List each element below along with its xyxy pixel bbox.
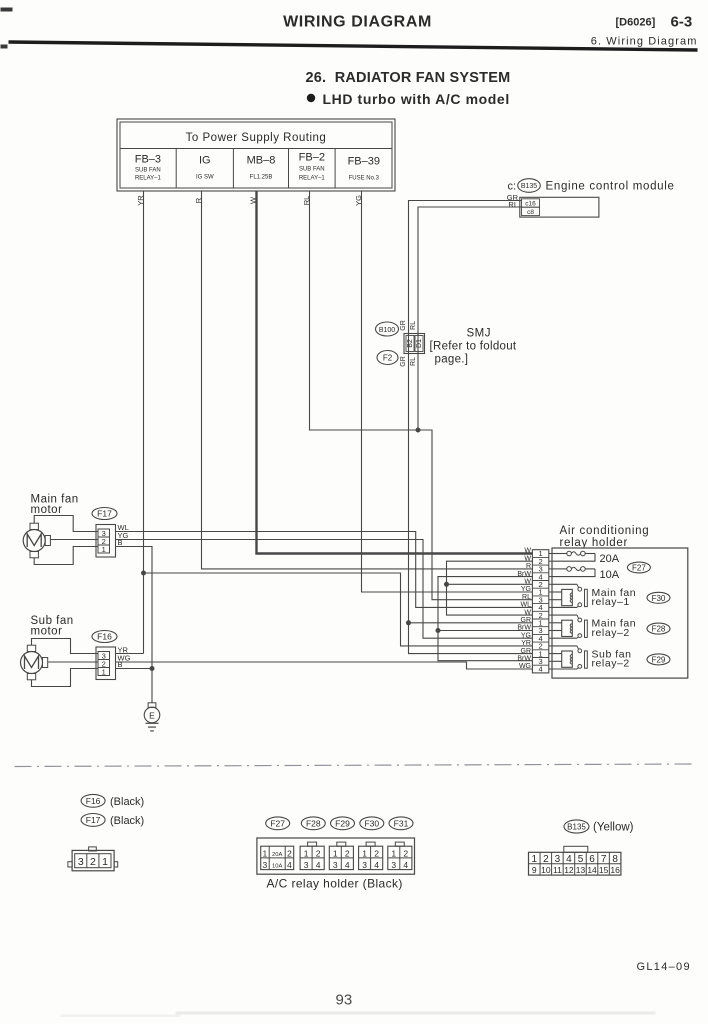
svg-text:F29: F29 — [335, 818, 350, 828]
svg-text:GL14–09: GL14–09 — [637, 961, 691, 973]
svg-text:GR: GR — [521, 617, 532, 624]
svg-text:3: 3 — [263, 860, 268, 870]
svg-text:2: 2 — [90, 856, 96, 868]
svg-text:2: 2 — [316, 849, 321, 859]
svg-text:3: 3 — [362, 860, 367, 870]
svg-text:F29: F29 — [652, 655, 666, 664]
svg-text:3: 3 — [391, 860, 396, 870]
svg-text:Air conditioning: Air conditioning — [560, 525, 650, 537]
svg-text:YR: YR — [521, 640, 531, 647]
svg-text:6-3: 6-3 — [671, 14, 693, 31]
svg-text:B135: B135 — [567, 823, 586, 832]
svg-text:3: 3 — [78, 856, 84, 868]
svg-text:11: 11 — [553, 865, 562, 875]
svg-text:(Black): (Black) — [110, 796, 144, 808]
svg-text:1: 1 — [102, 667, 106, 676]
svg-text:4: 4 — [539, 665, 543, 674]
svg-text:F2: F2 — [383, 354, 393, 363]
svg-text:F28: F28 — [306, 818, 321, 828]
svg-text:YG: YG — [521, 632, 531, 639]
svg-text:B: B — [118, 660, 123, 669]
svg-text:W: W — [524, 609, 531, 616]
svg-text:B100: B100 — [379, 327, 395, 334]
svg-text:F30: F30 — [652, 594, 666, 603]
svg-text:F17: F17 — [86, 815, 101, 825]
svg-text:1: 1 — [304, 849, 309, 859]
svg-text:relay–2: relay–2 — [592, 658, 630, 670]
svg-text:FL1.25B: FL1.25B — [250, 175, 273, 181]
svg-text:FB–3: FB–3 — [135, 154, 161, 166]
svg-text:6: 6 — [589, 854, 595, 865]
svg-text:F27: F27 — [632, 564, 646, 573]
svg-text:[Refer to foldout: [Refer to foldout — [430, 341, 517, 353]
svg-text:4: 4 — [345, 860, 350, 870]
svg-text:To Power Supply Routing: To Power Supply Routing — [186, 132, 327, 144]
svg-text:motor: motor — [31, 626, 63, 638]
svg-text:FUSE No.3: FUSE No.3 — [349, 176, 380, 182]
svg-text:F16: F16 — [97, 632, 112, 642]
svg-text:RL: RL — [410, 321, 417, 330]
svg-text:c16: c16 — [525, 201, 536, 208]
svg-text:3: 3 — [333, 860, 338, 870]
svg-text:1: 1 — [391, 849, 396, 859]
svg-text:RL: RL — [410, 357, 417, 366]
svg-text:BrW: BrW — [517, 625, 531, 632]
svg-text:8: 8 — [612, 854, 618, 865]
svg-text:93: 93 — [336, 992, 353, 1009]
svg-text:26. RADIATOR FAN SYSTEM: 26. RADIATOR FAN SYSTEM — [306, 70, 511, 86]
svg-text:SMJ: SMJ — [467, 328, 492, 340]
svg-text:Engine control module: Engine control module — [546, 181, 675, 193]
svg-text:W: W — [524, 555, 531, 562]
svg-text:12: 12 — [564, 865, 574, 875]
svg-text:F28: F28 — [652, 625, 666, 634]
svg-text:B135: B135 — [521, 183, 537, 190]
svg-text:E: E — [149, 711, 155, 721]
svg-text:WIRING DIAGRAM: WIRING DIAGRAM — [283, 14, 432, 31]
svg-text:YG: YG — [521, 586, 531, 593]
svg-text:c:: c: — [508, 181, 517, 193]
svg-text:2: 2 — [543, 854, 549, 865]
svg-text:2: 2 — [345, 849, 350, 859]
svg-text:RELAY–1: RELAY–1 — [299, 176, 326, 182]
svg-text:3: 3 — [304, 860, 309, 870]
svg-text:15: 15 — [599, 865, 609, 875]
svg-text:LHD turbo with A/C model: LHD turbo with A/C model — [323, 91, 510, 107]
svg-text:F16: F16 — [86, 796, 101, 806]
svg-text:6. Wiring Diagram: 6. Wiring Diagram — [591, 36, 698, 48]
svg-text:(Black): (Black) — [110, 815, 144, 827]
svg-text:GR: GR — [521, 648, 532, 655]
svg-text:F31: F31 — [394, 818, 409, 828]
svg-text:F17: F17 — [97, 509, 112, 519]
svg-text:relay–2: relay–2 — [592, 627, 630, 639]
svg-text:1: 1 — [102, 856, 108, 868]
svg-text:F30: F30 — [364, 818, 379, 828]
svg-text:2: 2 — [403, 849, 408, 859]
svg-text:BrW: BrW — [517, 571, 531, 578]
svg-text:(Yellow): (Yellow) — [593, 822, 634, 834]
svg-text:3: 3 — [555, 854, 561, 865]
svg-text:1: 1 — [102, 545, 106, 554]
svg-text:IG SW: IG SW — [196, 175, 214, 181]
svg-text:SUB FAN: SUB FAN — [299, 167, 325, 173]
svg-text:c8: c8 — [527, 209, 534, 216]
svg-text:4: 4 — [403, 860, 408, 870]
svg-text:2: 2 — [287, 849, 292, 859]
svg-text:R: R — [526, 563, 531, 570]
svg-text:FB–39: FB–39 — [348, 156, 380, 168]
svg-text:4: 4 — [374, 860, 379, 870]
svg-text:10A: 10A — [600, 569, 620, 581]
svg-text:[D6026]: [D6026] — [616, 17, 656, 29]
svg-text:SUB FAN: SUB FAN — [135, 168, 161, 174]
svg-text:5: 5 — [578, 854, 584, 865]
svg-text:WG: WG — [519, 663, 531, 670]
svg-text:GR: GR — [400, 356, 407, 367]
svg-text:1: 1 — [362, 849, 367, 859]
svg-text:MB–8: MB–8 — [247, 155, 276, 167]
svg-text:4: 4 — [566, 854, 572, 865]
svg-text:BrW: BrW — [517, 656, 531, 663]
svg-text:WL: WL — [521, 602, 532, 609]
svg-text:page.]: page.] — [435, 354, 469, 366]
svg-text:FB–2: FB–2 — [299, 152, 325, 164]
svg-text:1: 1 — [263, 849, 268, 859]
svg-text:motor: motor — [31, 504, 63, 516]
svg-text:GR: GR — [400, 320, 407, 331]
svg-text:20A: 20A — [272, 852, 282, 858]
svg-text:relay holder: relay holder — [560, 537, 629, 549]
svg-text:4: 4 — [287, 860, 292, 870]
svg-text:A/C relay holder (Black): A/C relay holder (Black) — [267, 877, 403, 891]
svg-text:1: 1 — [333, 849, 338, 859]
svg-text:14: 14 — [587, 865, 597, 875]
svg-text:relay–1: relay–1 — [592, 596, 630, 608]
svg-text:RL: RL — [522, 594, 531, 601]
svg-text:20A: 20A — [600, 553, 620, 565]
svg-text:2: 2 — [374, 849, 379, 859]
svg-text:W: W — [524, 579, 531, 586]
svg-text:10A: 10A — [272, 863, 282, 869]
svg-text:B: B — [118, 538, 123, 547]
svg-text:IG: IG — [199, 155, 211, 167]
svg-text:13: 13 — [576, 865, 586, 875]
svg-text:F27: F27 — [270, 818, 285, 828]
svg-text:10: 10 — [541, 865, 551, 875]
svg-text:1: 1 — [532, 854, 538, 865]
svg-text:D1: D1 — [416, 339, 423, 348]
svg-text:9: 9 — [532, 865, 537, 875]
svg-text:RELAY–1: RELAY–1 — [135, 176, 162, 182]
svg-text:16: 16 — [610, 865, 620, 875]
svg-text:W: W — [524, 548, 531, 555]
svg-text:7: 7 — [601, 854, 607, 865]
svg-text:4: 4 — [316, 860, 321, 870]
